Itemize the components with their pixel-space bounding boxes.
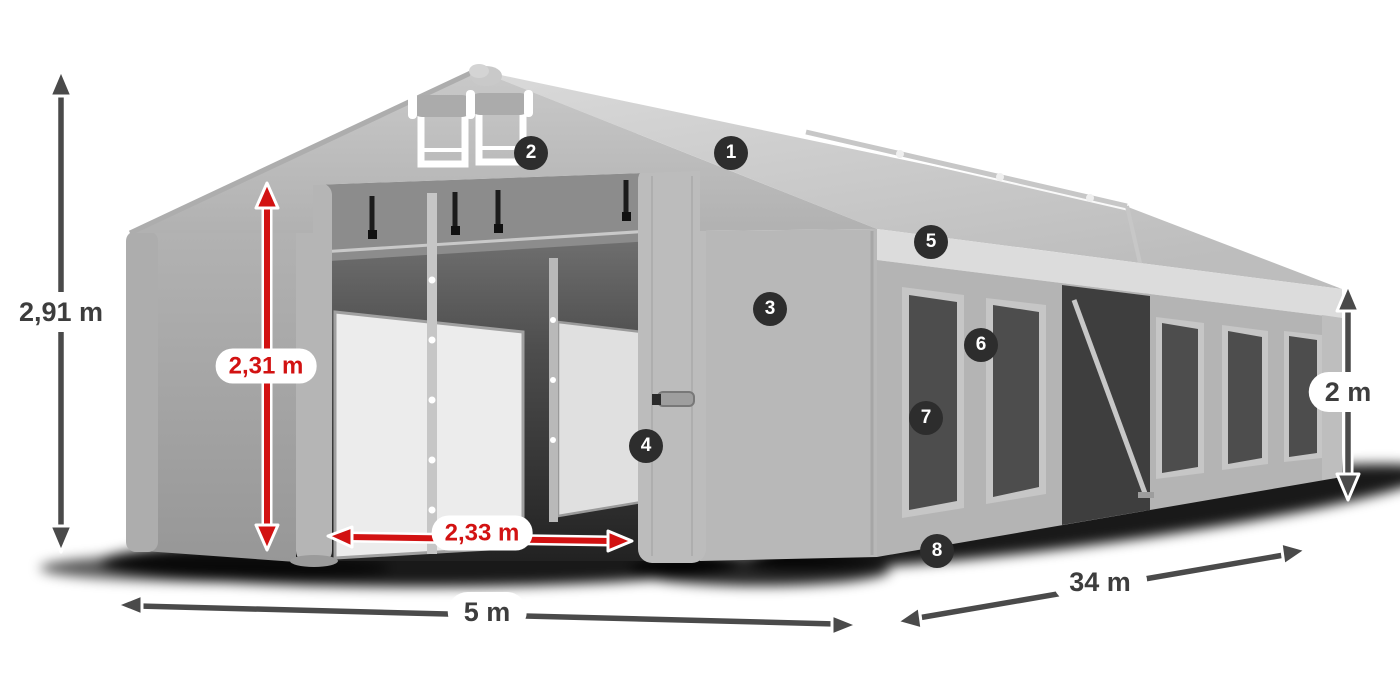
door-post-right bbox=[638, 166, 706, 563]
dim-label-side-length: 34 m bbox=[1053, 562, 1147, 602]
callout-badge-3: 3 bbox=[753, 292, 787, 326]
side-window bbox=[993, 305, 1039, 497]
interior-pole bbox=[427, 193, 437, 554]
dim-label-door-width: 2,33 m bbox=[432, 516, 533, 551]
corner-post-left bbox=[126, 231, 158, 552]
dim-label-side-height: 2 m bbox=[1309, 372, 1388, 412]
callout-badge-4: 4 bbox=[629, 429, 663, 463]
callout-badge-7: 7 bbox=[909, 401, 943, 435]
door-strap bbox=[658, 392, 694, 406]
post-foot bbox=[290, 555, 338, 567]
pole-foot bbox=[1138, 492, 1154, 498]
interior-door-panel-right bbox=[558, 322, 642, 516]
tent-illustration bbox=[0, 0, 1400, 700]
ridge-cap-top bbox=[469, 64, 489, 78]
callout-badge-1: 1 bbox=[714, 136, 748, 170]
side-window bbox=[1228, 331, 1262, 464]
tent-dimension-diagram: 1 2 3 4 5 6 7 8 2,91 m 2,31 m 2,33 m 5 m… bbox=[0, 0, 1400, 700]
side-opening bbox=[1062, 285, 1150, 525]
callout-badge-6: 6 bbox=[964, 328, 998, 362]
dim-label-door-height: 2,31 m bbox=[216, 349, 317, 384]
dim-label-total-height: 2,91 m bbox=[3, 292, 119, 332]
callout-badge-5: 5 bbox=[914, 225, 948, 259]
door-strap-clip bbox=[652, 394, 661, 405]
callout-badge-2: 2 bbox=[514, 136, 548, 170]
callout-badge-8: 8 bbox=[920, 534, 954, 568]
interior-pole bbox=[549, 258, 558, 522]
front-right-wall bbox=[700, 229, 877, 561]
side-window bbox=[1162, 323, 1198, 473]
dim-label-front-width: 5 m bbox=[448, 592, 527, 632]
